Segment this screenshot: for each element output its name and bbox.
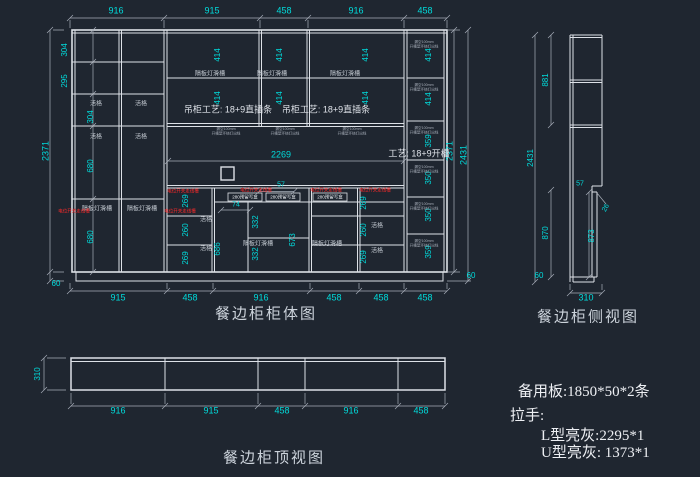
label-outlet-slot: 电位开关走线槽 xyxy=(164,209,196,214)
dim-left-row-4: 680 xyxy=(87,230,95,243)
label-wire-outlet: 漏空100mm开槽型环绕灯出线 xyxy=(271,127,300,136)
dim-height-left: 2371 xyxy=(42,141,51,161)
dim-bottom-1: 458 xyxy=(182,294,197,303)
note-handles: 拉手: xyxy=(510,404,544,425)
label-hang-process: 吊柜工艺: 18+9直插条 xyxy=(184,106,272,115)
dim-right-col-0: 414 xyxy=(425,48,433,61)
dim-topview-0: 916 xyxy=(110,407,125,416)
label-wire-outlet-line2: 开槽型环绕灯出线 xyxy=(338,131,367,135)
label-wire-outlet-line2: 开槽型环绕灯出线 xyxy=(410,206,439,210)
label-wire-outlet: 漏空100mm开槽型环绕灯出线 xyxy=(410,165,439,174)
dim-hang: 414 xyxy=(362,91,370,104)
dim-top-1: 915 xyxy=(204,7,219,16)
dim-small-col-1: 260 xyxy=(182,223,190,236)
label-wire-outlet-line2: 开槽型环绕灯出线 xyxy=(410,243,439,247)
dim-side-310: 310 xyxy=(578,294,593,303)
label-junction-box: 280预留写盒 xyxy=(317,195,343,200)
label-wire-outlet-line2: 开槽型环绕灯出线 xyxy=(410,44,439,48)
dim-bottom-3: 458 xyxy=(326,294,341,303)
label-hang-process: 吊柜工艺: 18+9直插条 xyxy=(282,106,370,115)
dim-top-3: 916 xyxy=(348,7,363,16)
dimension-lines xyxy=(41,15,606,409)
side-view-title: 餐边柜侧视图 xyxy=(537,310,639,325)
dim-left-row-1: 295 xyxy=(61,74,69,87)
label-wire-outlet-line2: 开槽型环绕灯出线 xyxy=(410,87,439,91)
label-wire-outlet-line2: 开槽型环绕灯出线 xyxy=(410,169,439,173)
dim-hang: 414 xyxy=(214,91,222,104)
dim-base-right-2: 269 xyxy=(360,250,368,263)
label-wire-outlet: 漏空100mm开槽型环绕灯出线 xyxy=(410,126,439,135)
dim-side-2431: 2431 xyxy=(527,149,535,167)
dim-top-2: 458 xyxy=(276,7,291,16)
elevation-title: 餐边柜柜体图 xyxy=(215,307,317,322)
dim-left-row-2: 304 xyxy=(87,110,95,123)
top-view-title: 餐边柜顶视图 xyxy=(223,451,325,466)
label-wire-outlet: 漏空100mm开槽型环绕灯出线 xyxy=(338,127,367,136)
dim-mid-673: 673 xyxy=(289,233,297,246)
dim-top-0: 916 xyxy=(108,7,123,16)
dim-height-overall: 2431 xyxy=(460,145,469,165)
dim-left-row-0: 304 xyxy=(61,43,69,56)
label-movable-shelf: 活格 xyxy=(90,101,102,107)
dim-topview-3: 916 xyxy=(343,407,358,416)
dim-hang: 414 xyxy=(276,91,284,104)
note-spare-board: 备用板:1850*50*2条 xyxy=(518,380,650,401)
dim-toe-right: 60 xyxy=(467,272,476,280)
side-view-frame xyxy=(570,35,602,282)
label-junction-box: 280预留写盒 xyxy=(270,195,296,200)
dim-hang: 414 xyxy=(362,48,370,61)
label-wire-outlet: 漏空100mm开槽型环绕灯出线 xyxy=(212,127,241,136)
dim-right-col-1: 414 xyxy=(425,92,433,105)
dim-base-right-0: 269 xyxy=(360,196,368,209)
dim-base-right-1: 260 xyxy=(360,223,368,236)
label-outlet-slot: 电位开关走线槽 xyxy=(167,189,199,194)
dim-topview-2: 458 xyxy=(274,407,289,416)
label-movable-shelf: 活格 xyxy=(135,134,147,140)
label-wire-outlet: 漏空100mm开槽型环绕灯出线 xyxy=(410,40,439,49)
top-view-frame xyxy=(71,358,445,390)
label-outlet-slot: 电位开关走线槽 xyxy=(240,188,272,193)
dim-bottom-4: 458 xyxy=(373,294,388,303)
label-movable-shelf: 活格 xyxy=(200,246,212,252)
dim-mid-686: 686 xyxy=(214,242,222,255)
dim-topview-1: 915 xyxy=(203,407,218,416)
label-outlet-slot: 电位开关走线槽 xyxy=(310,188,342,193)
label-shelf-light: 隔板灯滑槽 xyxy=(195,71,225,77)
dim-right-col-2: 359 xyxy=(425,134,433,147)
label-wire-outlet: 漏空100mm开槽型环绕灯出线 xyxy=(410,202,439,211)
dim-side-881: 881 xyxy=(542,73,550,86)
label-movable-shelf: 活格 xyxy=(371,223,383,229)
dim-mid-332a: 332 xyxy=(252,215,260,228)
dim-bottom-5: 458 xyxy=(417,294,432,303)
dim-open-width: 2269 xyxy=(271,151,291,160)
dim-small-col-0: 269 xyxy=(182,194,190,207)
label-wire-outlet: 漏空100mm开槽型环绕灯出线 xyxy=(410,83,439,92)
label-shelf-light: 隔板灯滑槽 xyxy=(127,206,157,212)
dim-side-870: 870 xyxy=(542,226,550,239)
label-movable-shelf: 活格 xyxy=(200,217,212,223)
dim-left-row-3: 680 xyxy=(87,159,95,172)
label-shelf-light: 隔板灯滑槽 xyxy=(243,241,273,247)
dim-side-57: 57 xyxy=(576,181,584,188)
dim-mid-74: 74 xyxy=(232,202,240,209)
label-shelf-light: 隔板灯滑槽 xyxy=(257,71,287,77)
label-process: 工艺: 18+9开槽 xyxy=(388,150,449,159)
dim-toe-left: 60 xyxy=(52,280,61,288)
label-wire-outlet-line2: 开槽型环绕灯出线 xyxy=(271,131,300,135)
label-shelf-light: 隔板灯滑槽 xyxy=(330,71,360,77)
dim-hang: 414 xyxy=(214,48,222,61)
label-movable-shelf: 活格 xyxy=(371,248,383,254)
dim-top-4: 458 xyxy=(417,7,432,16)
dim-topview-depth: 310 xyxy=(34,367,42,380)
label-wire-outlet-line2: 开槽型环绕灯出线 xyxy=(410,130,439,134)
label-junction-box: 280预留写盒 xyxy=(232,195,258,200)
dim-bottom-2: 916 xyxy=(253,294,268,303)
cad-canvas: 916 915 458 916 458 915 458 916 458 458 … xyxy=(0,0,700,477)
label-movable-shelf: 活格 xyxy=(90,134,102,140)
label-outlet-slot: 电位开关走线槽 xyxy=(58,209,90,214)
dim-side-60: 60 xyxy=(535,272,544,280)
dim-mid-332b: 332 xyxy=(252,247,260,260)
dim-side-873: 873 xyxy=(588,229,596,242)
label-shelf-light: 隔板灯滑槽 xyxy=(312,241,342,247)
label-wire-outlet-line2: 开槽型环绕灯出线 xyxy=(212,131,241,135)
dim-bottom-0: 915 xyxy=(110,294,125,303)
dim-small-col-2: 269 xyxy=(182,251,190,264)
note-handle-u: U型亮灰: 1373*1 xyxy=(541,441,650,462)
dim-mid-57: 57 xyxy=(277,182,285,189)
label-outlet-slot: 电位开关走线槽 xyxy=(359,188,391,193)
dim-topview-4: 458 xyxy=(413,407,428,416)
dim-hang: 414 xyxy=(276,48,284,61)
label-wire-outlet: 漏空100mm开槽型环绕灯出线 xyxy=(410,239,439,248)
label-movable-shelf: 活格 xyxy=(135,101,147,107)
